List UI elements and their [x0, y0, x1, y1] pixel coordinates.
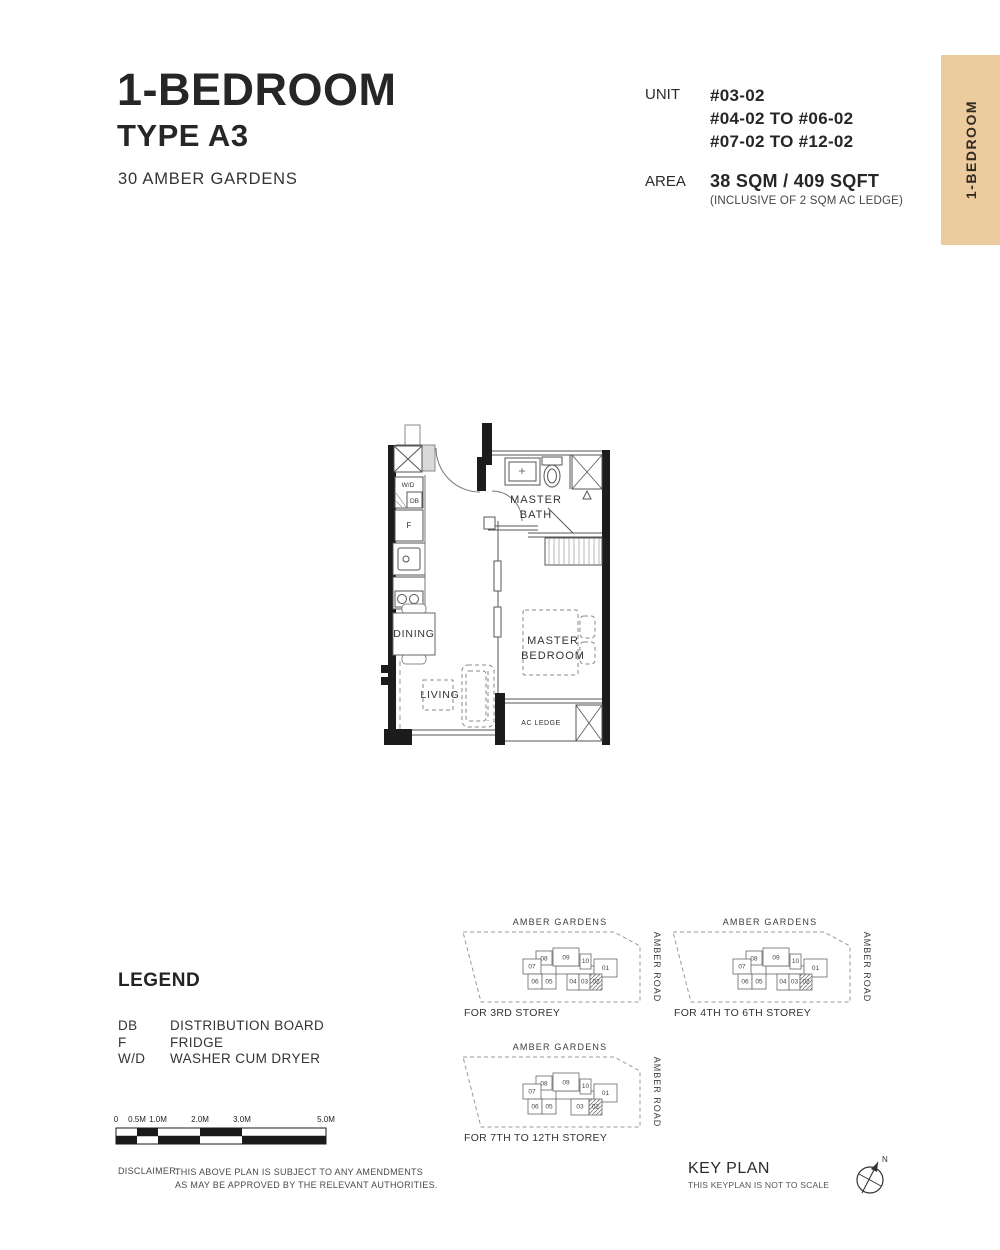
svg-text:02: 02 — [592, 1104, 600, 1111]
svg-text:08: 08 — [540, 956, 548, 963]
svg-text:06: 06 — [531, 1104, 539, 1111]
distribution-board-label: DB — [410, 498, 419, 505]
legend-title: LEGEND — [118, 970, 324, 992]
floor-plan-page: { "header": { "title": "1-BEDROOM", "sub… — [0, 0, 1000, 1250]
side-tab-1-bedroom: 1-BEDROOM — [941, 55, 1000, 245]
svg-text:04: 04 — [779, 979, 787, 986]
street-label-top: AMBER GARDENS — [513, 1042, 608, 1052]
dining-label: DINING — [393, 628, 435, 640]
svg-text:10: 10 — [792, 958, 800, 965]
toilet — [542, 457, 562, 465]
svg-text:BEDROOM: BEDROOM — [521, 650, 585, 662]
svg-text:01: 01 — [602, 1090, 610, 1097]
keyplan-caption: FOR 3RD STOREY — [464, 1007, 560, 1019]
door-jamb — [422, 445, 435, 471]
svg-text:5.0M: 5.0M — [317, 1115, 335, 1124]
svg-text:05: 05 — [545, 979, 553, 986]
svg-text:1.0M: 1.0M — [149, 1115, 167, 1124]
floor-plan-drawing: W/D DB F MASTER BATH DINING LIVING MASTE… — [378, 413, 613, 753]
keyplan-3rd-storey: AMBER GARDENS AMBER ROAD 08 09 10 07 01 … — [457, 913, 669, 1025]
keyplan-caption: FOR 7TH TO 12TH STOREY — [464, 1132, 607, 1144]
project-name: 30 AMBER GARDENS — [118, 170, 298, 189]
master-bedroom-label: MASTER — [527, 635, 579, 647]
unit-line: #04-02 TO #06-02 — [710, 107, 903, 130]
svg-text:10: 10 — [582, 1083, 590, 1090]
keyplan-title: KEY PLAN — [688, 1160, 829, 1178]
unit-label: UNIT — [645, 84, 710, 153]
area-note: (INCLUSIVE OF 2 SQM AC LEDGE) — [710, 195, 903, 207]
north-compass-icon: N — [848, 1150, 896, 1202]
svg-text:08: 08 — [540, 1081, 548, 1088]
column — [484, 517, 495, 529]
svg-text:04: 04 — [569, 979, 577, 986]
disclaimer-label: DISCLAIMER: — [118, 1166, 175, 1192]
svg-text:01: 01 — [602, 965, 610, 972]
svg-text:10: 10 — [582, 958, 590, 965]
svg-text:06: 06 — [531, 979, 539, 986]
svg-text:05: 05 — [545, 1104, 553, 1111]
living-label: LIVING — [420, 689, 459, 701]
svg-text:05: 05 — [755, 979, 763, 986]
svg-text:3.0M: 3.0M — [233, 1115, 251, 1124]
washer-dryer-label: W/D — [402, 482, 415, 489]
street-label-right: AMBER ROAD — [652, 932, 662, 1003]
svg-text:09: 09 — [772, 955, 780, 962]
svg-text:01: 01 — [812, 965, 820, 972]
legend-item: W/D WASHER CUM DRYER — [118, 1051, 324, 1068]
master-bath-label: MASTER — [510, 494, 562, 506]
north-label: N — [882, 1155, 888, 1164]
area-label: AREA — [645, 171, 710, 207]
svg-text:03: 03 — [791, 979, 799, 986]
svg-text:2.0M: 2.0M — [191, 1115, 209, 1124]
street-label-top: AMBER GARDENS — [513, 917, 608, 927]
side-tab-label: 1-BEDROOM — [963, 100, 979, 199]
unit-info-block: UNIT #03-02 #04-02 TO #06-02 #07-02 TO #… — [645, 84, 903, 207]
keyplan-4th-6th-storey: AMBER GARDENS AMBER ROAD 08 09 10 07 01 … — [667, 913, 879, 1025]
svg-text:03: 03 — [576, 1104, 584, 1111]
wardrobe — [545, 538, 602, 565]
disclaimer-line: AS MAY BE APPROVED BY THE RELEVANT AUTHO… — [175, 1180, 438, 1190]
pillow — [580, 616, 595, 638]
keyplan-caption: FOR 4TH TO 6TH STOREY — [674, 1007, 811, 1019]
legend-item: DB DISTRIBUTION BOARD — [118, 1018, 324, 1035]
svg-text:BATH: BATH — [520, 509, 553, 521]
ac-ledge-shaft — [576, 705, 602, 741]
legend-item: F FRIDGE — [118, 1035, 324, 1052]
svg-text:07: 07 — [738, 964, 746, 971]
svg-text:0: 0 — [114, 1115, 119, 1124]
sofa — [462, 665, 494, 727]
unit-line: #03-02 — [710, 84, 903, 107]
fridge-label: F — [407, 521, 412, 530]
keyplan-footer: KEY PLAN THIS KEYPLAN IS NOT TO SCALE — [688, 1160, 829, 1190]
svg-text:07: 07 — [528, 1089, 536, 1096]
page-title: 1-BEDROOM — [117, 64, 397, 116]
area-value: 38 SQM / 409 SQFT — [710, 171, 903, 192]
sliding-panel — [494, 561, 501, 591]
svg-text:02: 02 — [592, 979, 600, 986]
ac-ledge-label: AC LEDGE — [521, 720, 560, 727]
svg-text:06: 06 — [741, 979, 749, 986]
svg-text:0.5M: 0.5M — [128, 1115, 146, 1124]
svg-text:08: 08 — [750, 956, 758, 963]
svg-text:07: 07 — [528, 964, 536, 971]
keyplan-note: THIS KEYPLAN IS NOT TO SCALE — [688, 1180, 829, 1190]
scale-bar: 0 0.5M 1.0M 2.0M 3.0M 5.0M — [112, 1112, 342, 1157]
sliding-panel — [494, 607, 501, 637]
street-label-right: AMBER ROAD — [862, 932, 872, 1003]
unit-numbers: #03-02 #04-02 TO #06-02 #07-02 TO #12-02 — [710, 84, 903, 153]
entry-door-arc — [436, 448, 480, 492]
street-label-top: AMBER GARDENS — [723, 917, 818, 927]
bath-fixtures — [505, 455, 602, 499]
disclaimer: DISCLAIMER: THIS ABOVE PLAN IS SUBJECT T… — [118, 1166, 438, 1192]
svg-text:03: 03 — [581, 979, 589, 986]
svg-text:09: 09 — [562, 1080, 570, 1087]
street-label-right: AMBER ROAD — [652, 1057, 662, 1128]
unit-type-subtitle: TYPE A3 — [117, 118, 249, 154]
svg-text:02: 02 — [802, 979, 810, 986]
unit-line: #07-02 TO #12-02 — [710, 130, 903, 153]
keyplan-7th-12th-storey: AMBER GARDENS AMBER ROAD 08 09 10 07 01 … — [457, 1038, 669, 1150]
svg-text:09: 09 — [562, 955, 570, 962]
legend: LEGEND DB DISTRIBUTION BOARD F FRIDGE W/… — [118, 970, 324, 1068]
disclaimer-line: THIS ABOVE PLAN IS SUBJECT TO ANY AMENDM… — [175, 1167, 423, 1177]
